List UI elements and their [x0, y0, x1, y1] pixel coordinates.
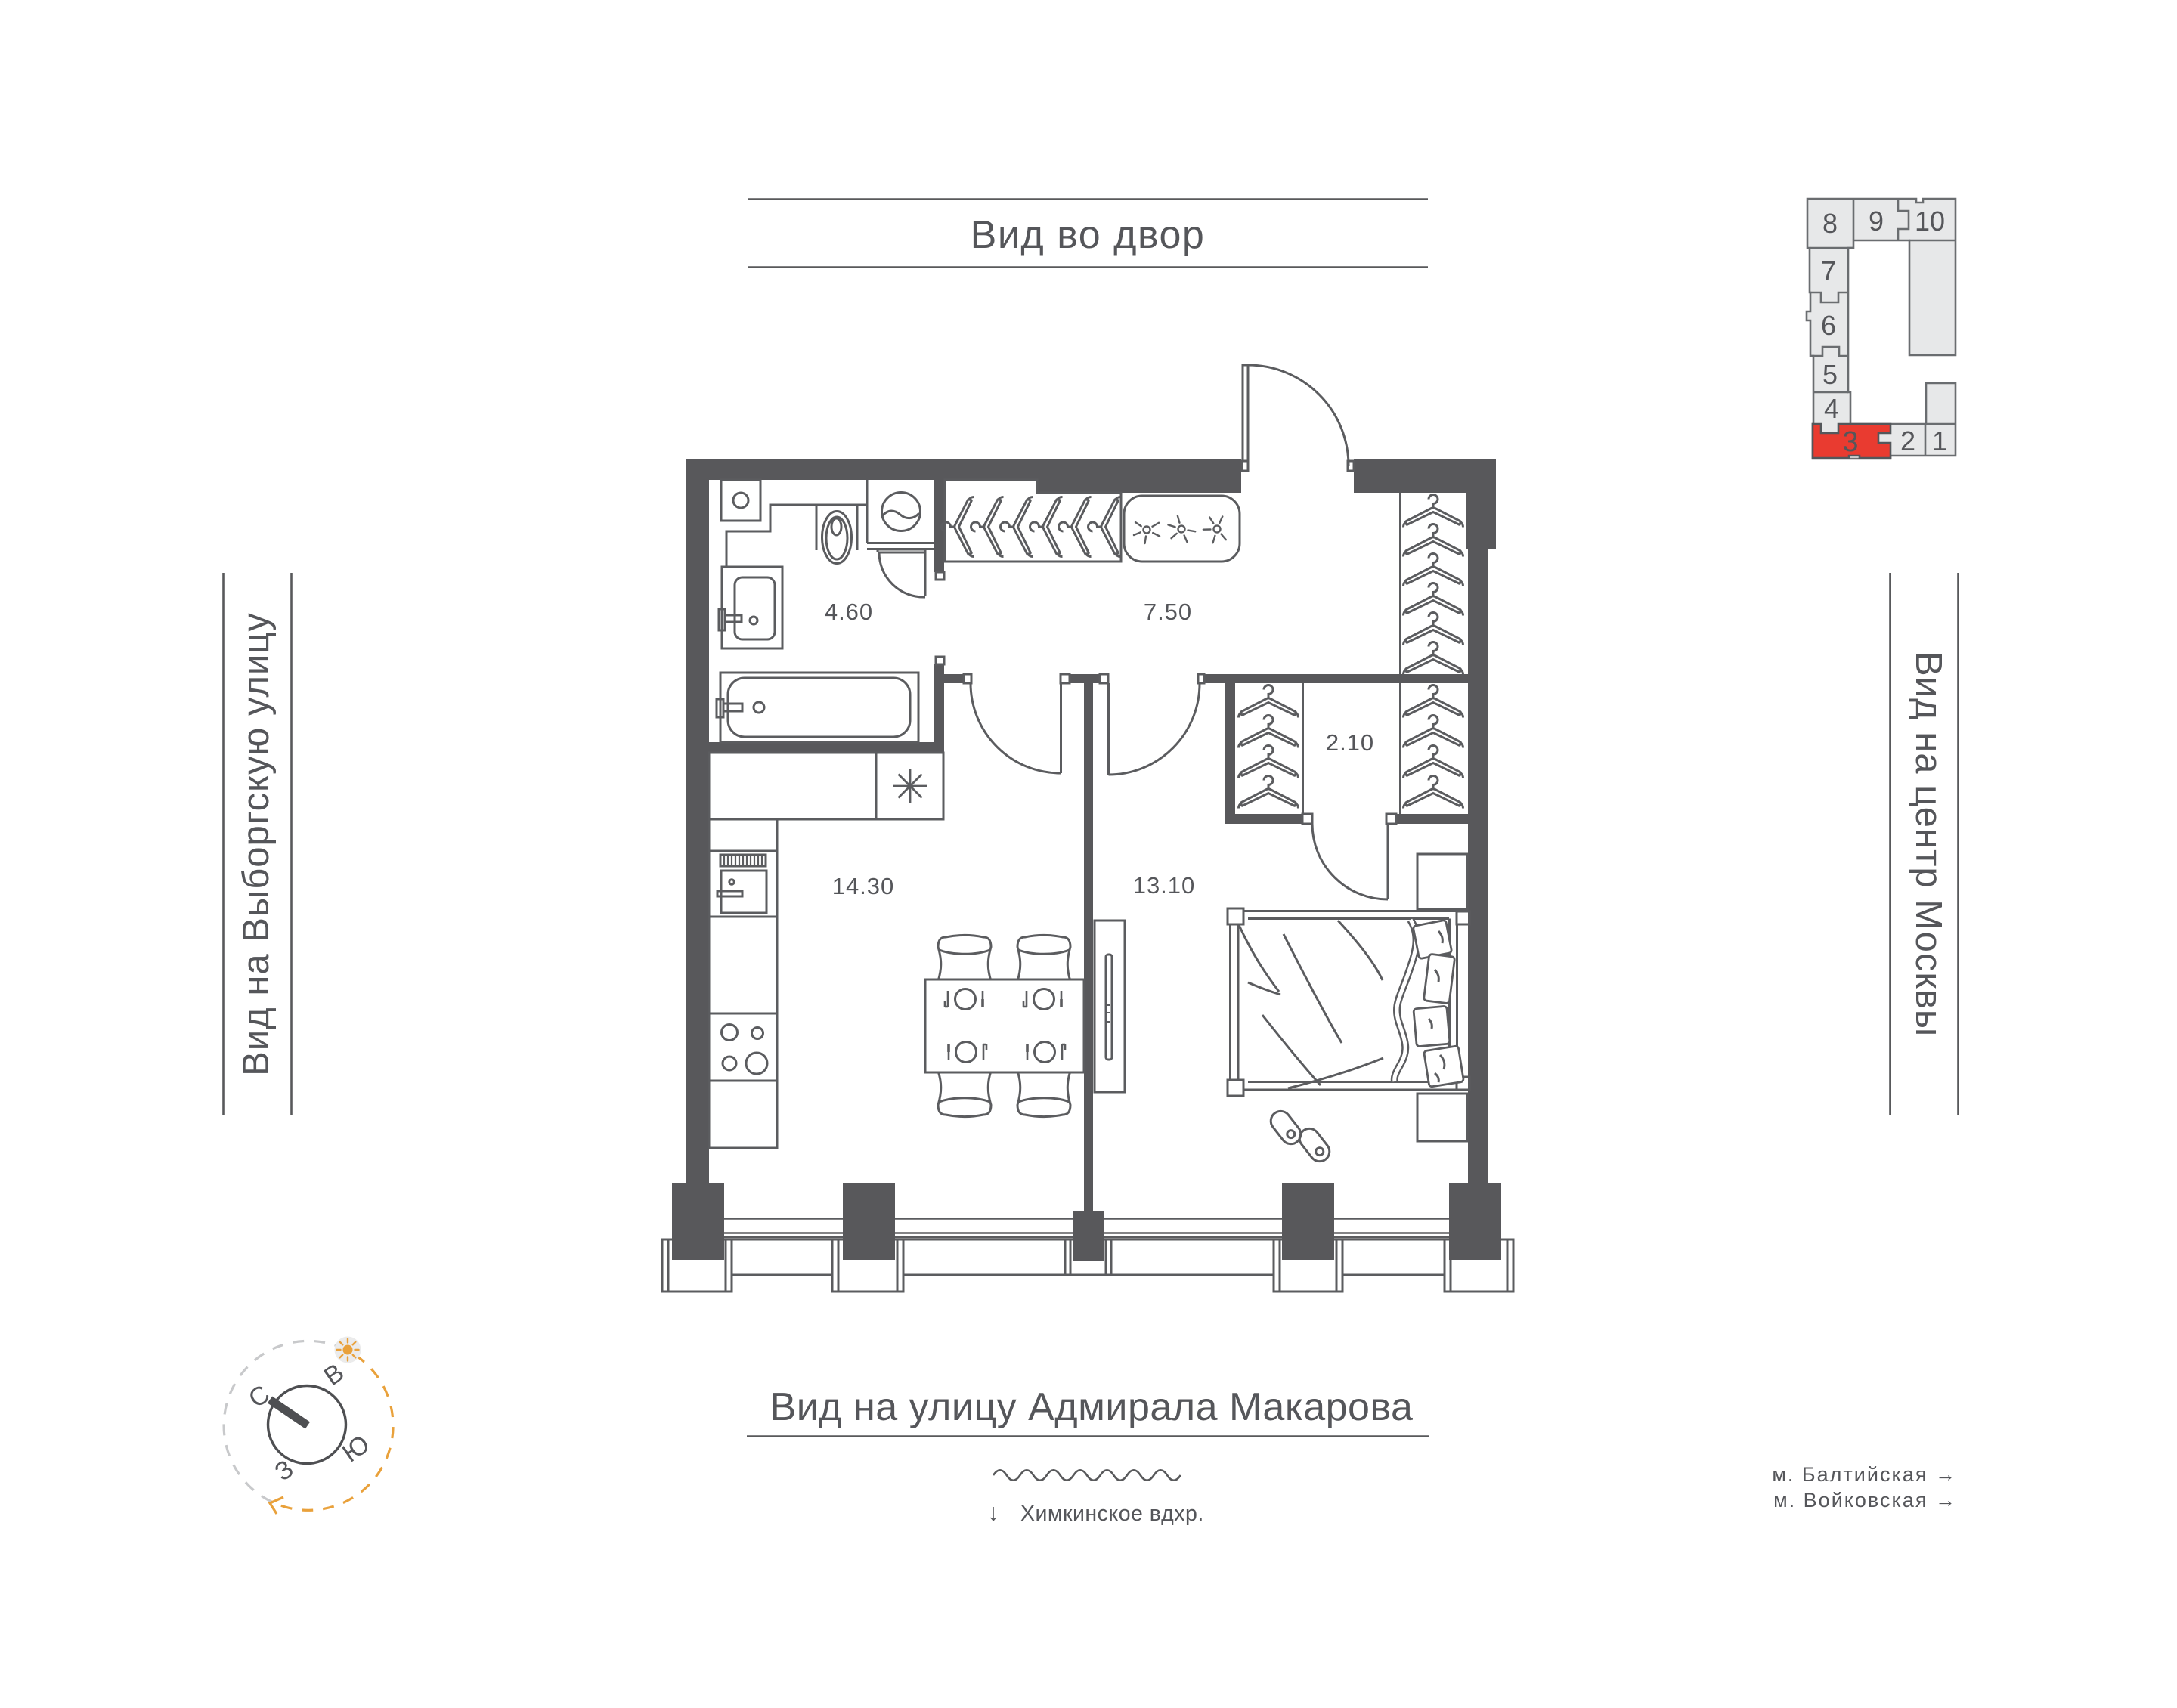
svg-text:9: 9 [1869, 206, 1884, 237]
svg-text:7: 7 [1821, 255, 1836, 286]
svg-text:Химкинское вдхр.: Химкинское вдхр. [1020, 1502, 1204, 1526]
svg-text:7.50: 7.50 [1144, 599, 1192, 625]
svg-text:↓: ↓ [987, 1499, 999, 1526]
svg-text:Вид на Выборгскую улицу: Вид на Выборгскую улицу [236, 612, 277, 1076]
svg-text:1: 1 [1932, 425, 1947, 456]
svg-text:Вид на улицу Адмирала Макарова: Вид на улицу Адмирала Макарова [770, 1385, 1414, 1429]
svg-text:4: 4 [1824, 393, 1839, 424]
svg-text:5: 5 [1822, 359, 1838, 390]
svg-text:В: В [319, 1358, 349, 1391]
svg-text:6: 6 [1821, 310, 1836, 341]
svg-text:м. Балтийская →: м. Балтийская → [1772, 1463, 1957, 1486]
svg-text:2.10: 2.10 [1326, 729, 1374, 756]
svg-text:13.10: 13.10 [1133, 872, 1196, 899]
svg-text:Вид во двор: Вид во двор [971, 213, 1206, 257]
svg-text:м. Войковская →: м. Войковская → [1773, 1489, 1957, 1512]
svg-text:10: 10 [1915, 206, 1945, 237]
svg-text:Вид на центр Москвы: Вид на центр Москвы [1908, 651, 1949, 1037]
svg-text:8: 8 [1822, 208, 1838, 239]
svg-text:3: 3 [1842, 426, 1858, 458]
svg-text:4.60: 4.60 [825, 599, 873, 625]
svg-text:2: 2 [1900, 425, 1915, 456]
svg-text:14.30: 14.30 [832, 873, 895, 899]
